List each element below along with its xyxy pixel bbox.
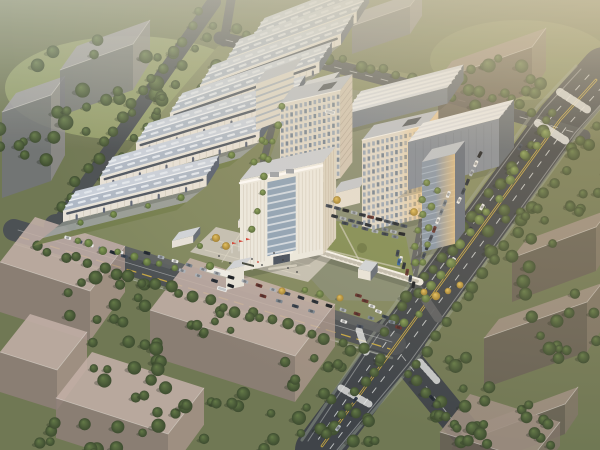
industrial-park-aerial-scene	[0, 0, 600, 450]
atmosphere-overlays	[0, 0, 600, 450]
aerial-rendering-stage	[0, 0, 600, 450]
